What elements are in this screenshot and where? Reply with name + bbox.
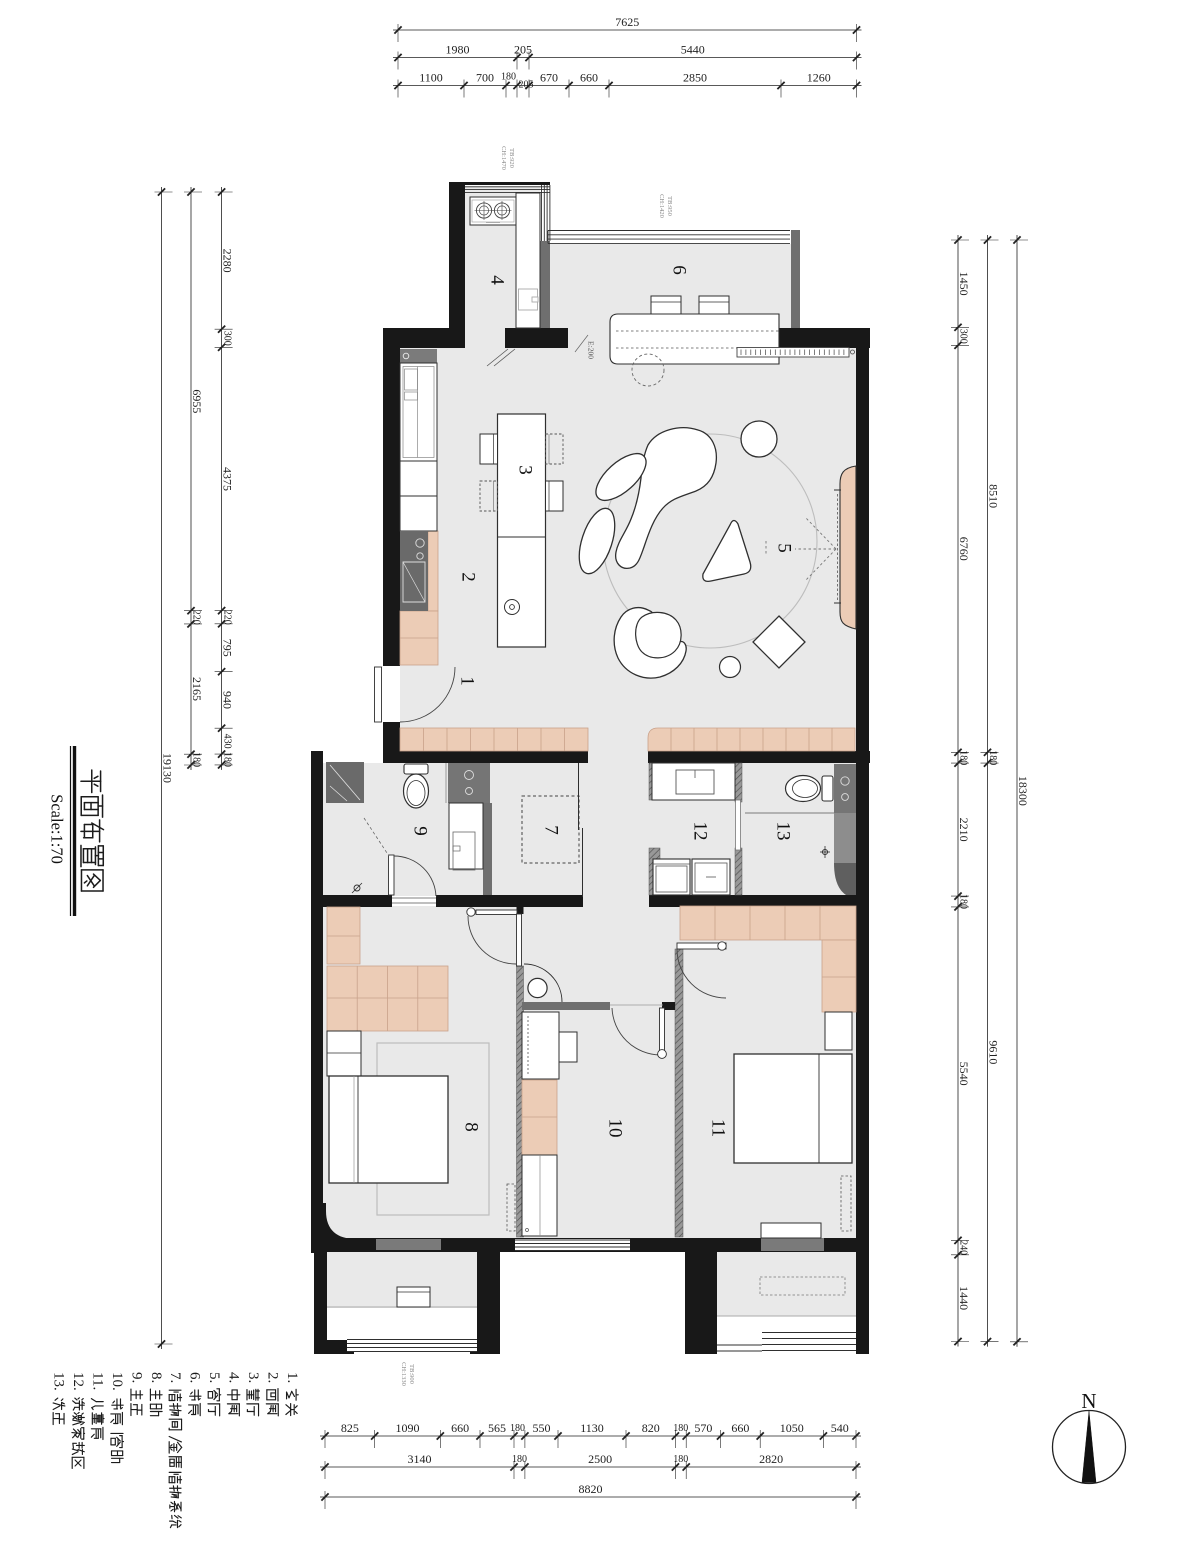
svg-text:5: 5 bbox=[774, 543, 795, 553]
svg-text:6760: 6760 bbox=[957, 537, 971, 561]
svg-text:565: 565 bbox=[488, 1421, 506, 1435]
svg-text:795: 795 bbox=[221, 639, 235, 657]
svg-text:1440: 1440 bbox=[957, 1286, 971, 1310]
svg-text:7: 7 bbox=[541, 825, 562, 835]
svg-text:8820: 8820 bbox=[579, 1482, 603, 1496]
svg-text:1090: 1090 bbox=[396, 1421, 420, 1435]
svg-text:2165: 2165 bbox=[190, 677, 204, 701]
svg-text:8510: 8510 bbox=[987, 484, 1001, 508]
svg-text:180: 180 bbox=[510, 1423, 525, 1434]
svg-text:220: 220 bbox=[221, 610, 232, 625]
svg-text:180: 180 bbox=[673, 1454, 688, 1465]
svg-text:CH:1420: CH:1420 bbox=[658, 194, 665, 218]
svg-text:E:200: E:200 bbox=[586, 341, 595, 359]
svg-text:1: 1 bbox=[457, 676, 478, 686]
svg-text:4: 4 bbox=[487, 275, 508, 285]
svg-text:3.: 3. bbox=[245, 1372, 261, 1383]
svg-text:180: 180 bbox=[673, 1423, 688, 1434]
svg-text:1.: 1. bbox=[284, 1372, 300, 1383]
svg-text:4.: 4. bbox=[226, 1372, 242, 1383]
svg-text:820: 820 bbox=[642, 1421, 660, 1435]
svg-text:4375: 4375 bbox=[221, 467, 235, 491]
svg-text:TB:950: TB:950 bbox=[666, 196, 673, 216]
svg-text:2850: 2850 bbox=[683, 71, 707, 85]
svg-text:7625: 7625 bbox=[615, 15, 639, 29]
svg-text:3140: 3140 bbox=[408, 1452, 432, 1466]
svg-text:5.: 5. bbox=[206, 1372, 222, 1383]
svg-text:2: 2 bbox=[458, 572, 479, 582]
svg-text:540: 540 bbox=[831, 1421, 849, 1435]
svg-text:5440: 5440 bbox=[681, 43, 705, 57]
svg-text:660: 660 bbox=[580, 71, 598, 85]
svg-text:180: 180 bbox=[501, 72, 516, 83]
svg-text:1050: 1050 bbox=[780, 1421, 804, 1435]
svg-text:Scale:1:70: Scale:1:70 bbox=[47, 794, 66, 864]
svg-text:300: 300 bbox=[958, 329, 969, 344]
svg-text:220: 220 bbox=[191, 610, 202, 625]
svg-text:1100: 1100 bbox=[419, 71, 443, 85]
svg-text:13: 13 bbox=[773, 822, 794, 841]
svg-text:180: 180 bbox=[958, 894, 969, 909]
svg-text:300: 300 bbox=[221, 331, 232, 346]
svg-text:2500: 2500 bbox=[588, 1452, 612, 1466]
svg-text:9: 9 bbox=[410, 826, 431, 836]
svg-text:TB:900: TB:900 bbox=[408, 1364, 415, 1384]
svg-text:825: 825 bbox=[341, 1421, 359, 1435]
svg-text:1130: 1130 bbox=[580, 1421, 604, 1435]
svg-text:6: 6 bbox=[669, 265, 690, 275]
svg-text:1450: 1450 bbox=[957, 272, 971, 296]
svg-text:7.: 7. bbox=[167, 1372, 183, 1383]
svg-text:660: 660 bbox=[731, 1421, 749, 1435]
svg-text:180: 180 bbox=[987, 750, 998, 765]
svg-text:12: 12 bbox=[690, 822, 711, 841]
svg-text:1260: 1260 bbox=[807, 71, 831, 85]
svg-text:18300: 18300 bbox=[1016, 776, 1030, 806]
svg-text:180: 180 bbox=[191, 752, 202, 767]
svg-text:9.: 9. bbox=[128, 1372, 144, 1383]
svg-text:700: 700 bbox=[476, 71, 494, 85]
svg-text:8: 8 bbox=[461, 1122, 482, 1132]
svg-text:205: 205 bbox=[519, 80, 534, 91]
svg-text:2280: 2280 bbox=[221, 249, 235, 273]
svg-text:N: N bbox=[1081, 1389, 1096, 1413]
svg-text:10.: 10. bbox=[109, 1372, 125, 1391]
svg-text:5540: 5540 bbox=[957, 1062, 971, 1086]
svg-text:10: 10 bbox=[605, 1119, 626, 1138]
svg-text:13.: 13. bbox=[51, 1372, 67, 1391]
svg-text:11: 11 bbox=[708, 1119, 729, 1137]
svg-text:1980: 1980 bbox=[446, 43, 470, 57]
svg-text:660: 660 bbox=[451, 1421, 469, 1435]
svg-text:2820: 2820 bbox=[759, 1452, 783, 1466]
svg-text:2210: 2210 bbox=[957, 818, 971, 842]
svg-text:430: 430 bbox=[221, 734, 232, 749]
svg-text:180: 180 bbox=[512, 1454, 527, 1465]
svg-text:550: 550 bbox=[532, 1421, 550, 1435]
svg-text:180: 180 bbox=[221, 752, 232, 767]
svg-text:TB:920: TB:920 bbox=[508, 148, 515, 168]
svg-text:2.: 2. bbox=[264, 1372, 280, 1383]
svg-text:9610: 9610 bbox=[987, 1040, 1001, 1064]
svg-text:3: 3 bbox=[515, 465, 536, 475]
svg-text:11.: 11. bbox=[89, 1372, 105, 1390]
svg-text:8.: 8. bbox=[148, 1372, 164, 1383]
svg-text:205: 205 bbox=[514, 43, 532, 57]
svg-text:670: 670 bbox=[540, 71, 558, 85]
svg-text:12.: 12. bbox=[70, 1372, 86, 1391]
svg-text:180: 180 bbox=[958, 750, 969, 765]
svg-text:CH:1330: CH:1330 bbox=[400, 1362, 407, 1386]
svg-text:6.: 6. bbox=[187, 1372, 203, 1383]
svg-text:240: 240 bbox=[958, 1240, 969, 1255]
svg-text:570: 570 bbox=[694, 1421, 712, 1435]
svg-text:6955: 6955 bbox=[190, 389, 204, 413]
svg-text:940: 940 bbox=[221, 691, 235, 709]
svg-text:19130: 19130 bbox=[161, 753, 175, 783]
svg-text:CH:1470: CH:1470 bbox=[500, 146, 507, 170]
